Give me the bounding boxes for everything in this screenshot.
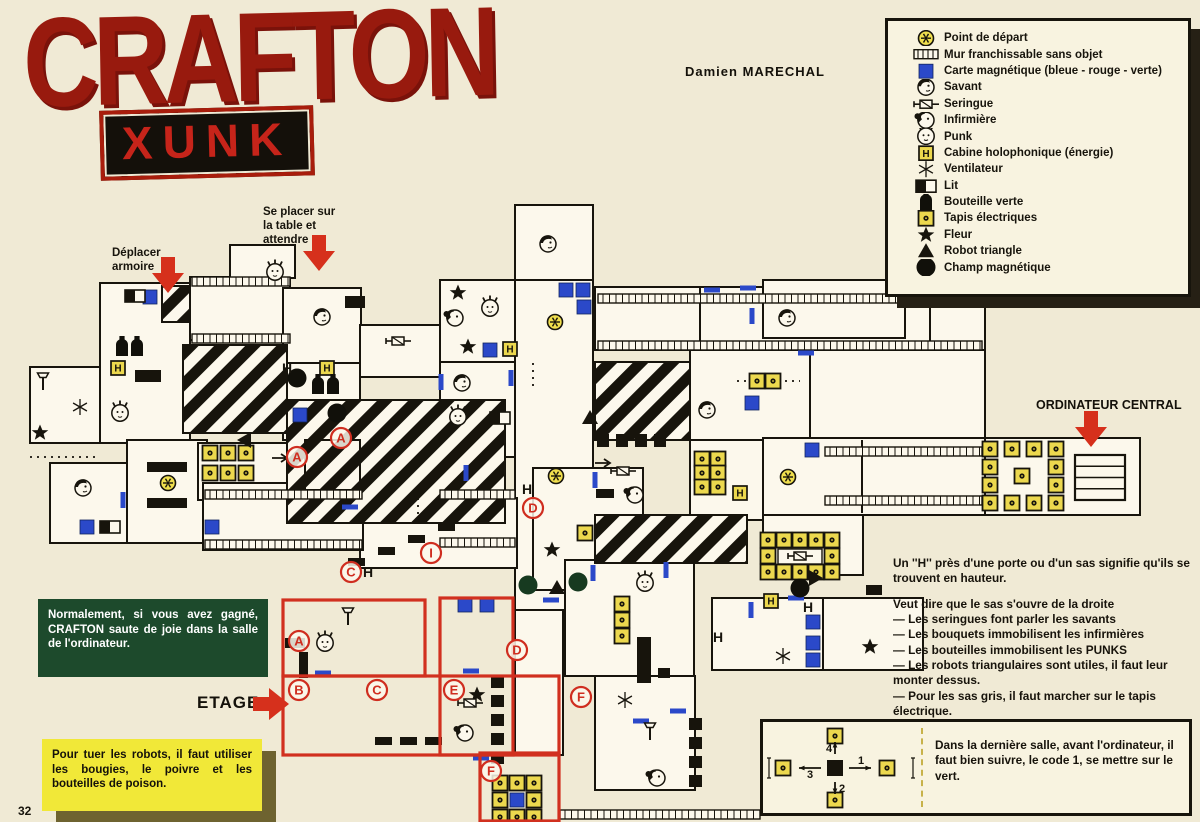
carte-icon: [806, 653, 820, 667]
table-block: [345, 296, 365, 308]
tapis-icon: [793, 533, 808, 548]
tapis-icon: [221, 466, 236, 481]
rule-line: — Pour les sas gris, il faut marcher sur…: [893, 689, 1195, 720]
lit-icon: [125, 290, 145, 302]
svg-text:F: F: [487, 764, 495, 779]
yellow-note: Pour tuer les robots, il faut utiliser l…: [42, 739, 262, 811]
red-arrow-down-icon: [303, 235, 335, 271]
rule-line: — Les seringues font parler les savants: [893, 612, 1195, 627]
tapis-icon: [983, 460, 998, 475]
sas-block: [654, 434, 666, 447]
ladder-mini-icon: [914, 50, 938, 59]
savant-icon: [918, 79, 934, 95]
legend-item-label: Fleur: [944, 229, 972, 241]
tapis-icon: [1015, 469, 1030, 484]
cabine-icon: H: [908, 145, 944, 161]
carte-icon: [293, 408, 307, 422]
rules-intro: Veut dire que le sas s'ouvre de la droit…: [893, 597, 1195, 612]
svg-text:H: H: [114, 364, 121, 375]
champ-icon: [328, 404, 347, 423]
logo-xunk-badge: XUNK: [99, 105, 315, 181]
tapis-icon: [1049, 442, 1064, 457]
legend-item-label: Point de départ: [944, 32, 1028, 44]
champ-icon: [569, 573, 588, 592]
svg-text:H: H: [922, 149, 929, 160]
point-icon: [549, 469, 564, 484]
cabine-icon: H: [919, 146, 933, 160]
infirmiere-icon: [454, 725, 474, 742]
rule-line: — Les robots triangulaires sont utiles, …: [893, 658, 1195, 689]
legend-rows: Point de départMur franchissable sans ob…: [888, 30, 1188, 276]
savant-icon: [454, 374, 470, 391]
tapis-icon: [203, 466, 218, 481]
tapis-icon: [983, 478, 998, 493]
table-block: [866, 585, 882, 595]
tapis-icon: [615, 613, 630, 628]
carte-icon: [80, 520, 94, 534]
room-letter-C: C: [367, 680, 387, 700]
tapis-icon: [983, 496, 998, 511]
legend-item-seringue: Seringue: [908, 96, 1188, 112]
carte-icon: [745, 396, 759, 410]
tapis-icon: [239, 466, 254, 481]
tapis-icon: [239, 446, 254, 461]
legend-item-champ: Champ magnétique: [908, 259, 1188, 275]
tapis-icon: [1005, 442, 1020, 457]
infirmiere-icon: [908, 112, 944, 128]
tapis-icon: [615, 629, 630, 644]
tapis-icon: [527, 776, 542, 791]
legend-item-vent: Ventilateur: [908, 161, 1188, 177]
tapis-icon: [828, 729, 843, 744]
punk-icon: [908, 128, 944, 144]
svg-text:C: C: [372, 683, 382, 698]
savant-icon: [699, 401, 715, 418]
tapis-icon: [777, 565, 792, 580]
carte-icon: [908, 63, 944, 79]
lit-icon: [100, 521, 120, 533]
tapis-icon: [809, 533, 824, 548]
code-divider: [921, 728, 923, 807]
svg-text:E: E: [450, 683, 459, 698]
tapis-icon: [493, 793, 508, 808]
table-block: [147, 498, 187, 508]
tapis-icon: [761, 565, 776, 580]
logo-xunk: XUNK: [121, 113, 293, 169]
code-note: Dans la dernière salle, avant l'ordinate…: [935, 738, 1183, 784]
tick-icon: [509, 370, 514, 386]
tapis-icon: [761, 549, 776, 564]
room-letter-F: F: [571, 687, 591, 707]
tapis-icon: [711, 466, 726, 481]
mur-franchissable-icon: [825, 447, 982, 456]
point-icon: [161, 476, 176, 491]
svg-text:H: H: [323, 364, 330, 375]
legend-item-ladder: Mur franchissable sans objet: [908, 46, 1188, 62]
robot-icon: [918, 243, 934, 257]
h-height-label: H: [363, 564, 373, 580]
tapis-icon: [695, 480, 710, 495]
h-height-label: H: [282, 360, 292, 376]
carte-icon: [483, 343, 497, 357]
point-icon: [781, 470, 796, 485]
table-block: [299, 652, 308, 678]
sas-block: [689, 775, 702, 787]
champ-icon: [519, 576, 538, 595]
punk-icon: [450, 405, 466, 426]
svg-text:D: D: [528, 501, 537, 516]
cabine-icon: H: [111, 361, 125, 375]
legend-item-savant: Savant: [908, 79, 1188, 95]
svg-text:H: H: [506, 345, 513, 356]
label-etage: ETAGE: [197, 693, 259, 713]
sas-block: [491, 676, 504, 688]
hatched-area: [595, 515, 747, 563]
legend-item-label: Infirmière: [944, 114, 996, 126]
tick-icon: [543, 598, 559, 603]
tapis-icon: [919, 211, 934, 226]
legend-item-label: Carte magnétique (bleue - rouge - verte): [944, 65, 1162, 77]
tapis-icon: [203, 446, 218, 461]
carte-icon: [919, 64, 933, 78]
tick-icon: [664, 562, 669, 578]
map-room: [360, 325, 440, 377]
bottle-icon: [908, 194, 944, 210]
sas-block: [597, 434, 609, 447]
author-credit: Damien MARECHAL: [685, 64, 825, 79]
code-number: 1: [858, 755, 864, 767]
map-room: [763, 280, 905, 338]
svg-text:F: F: [577, 690, 585, 705]
map-room: [690, 350, 810, 440]
tapis-icon: [750, 374, 765, 389]
mur-franchissable-icon: [560, 810, 760, 819]
tapis-icon: [695, 452, 710, 467]
savant-icon: [540, 235, 556, 252]
seringue-icon: [908, 96, 944, 112]
carte-icon: [577, 300, 591, 314]
h-height-label: H: [713, 629, 723, 645]
legend-item-fleur: Fleur: [908, 227, 1188, 243]
h-note: Un ''H'' près d'une porte ou d'un sas si…: [893, 556, 1195, 587]
svg-text:B: B: [294, 683, 303, 698]
svg-text:H: H: [736, 489, 743, 500]
mur-franchissable-icon: [825, 496, 982, 505]
bottle-icon: [920, 194, 932, 210]
svg-text:C: C: [346, 565, 356, 580]
tick-icon: [750, 308, 755, 324]
punk-icon: [317, 631, 333, 652]
legend-item-label: Lit: [944, 180, 958, 192]
cabine-icon: H: [733, 486, 747, 500]
room-letter-C: C: [341, 562, 361, 582]
tapis-icon: [1049, 478, 1064, 493]
hatched-area: [183, 345, 287, 433]
legend-item-carte: Carte magnétique (bleue - rouge - verte): [908, 63, 1188, 79]
lit-icon: [490, 412, 510, 424]
red-arrow-down-icon: [152, 257, 184, 293]
punk-icon: [918, 128, 934, 144]
point-icon: [548, 315, 563, 330]
legend-item-tapis: Tapis électriques: [908, 210, 1188, 226]
savant-icon: [779, 309, 795, 326]
carte-icon: [576, 283, 590, 297]
svg-text:A: A: [292, 450, 302, 465]
tapis-icon: [221, 446, 236, 461]
tapis-icon: [793, 565, 808, 580]
red-arrow-down-icon: [1074, 411, 1108, 447]
carte-icon: [480, 598, 494, 612]
sas-block: [689, 756, 702, 768]
carte-icon: [805, 443, 819, 457]
robot-icon: [908, 243, 944, 259]
tapis-icon: [1027, 442, 1042, 457]
magazine-page: HHHHHAACIDABCDEFFHHHHH CRAFTON & XUNK Da…: [0, 0, 1200, 822]
legend-item-infirmiere: Infirmière: [908, 112, 1188, 128]
legend-item-label: Bouteille verte: [944, 196, 1023, 208]
tapis-icon: [761, 533, 776, 548]
sas-block: [491, 733, 504, 745]
cabine-icon: H: [503, 342, 517, 356]
h-height-label: H: [522, 481, 532, 497]
dash-block: [438, 523, 455, 531]
legend-item-label: Robot triangle: [944, 245, 1022, 257]
tick-icon: [463, 669, 479, 674]
legend-item-label: Ventilateur: [944, 163, 1003, 175]
code-number: 2: [839, 783, 845, 795]
room-letter-A: A: [289, 631, 309, 651]
mur-franchissable-icon: [205, 490, 362, 499]
champ-icon: [917, 259, 936, 275]
cabine-icon: H: [764, 594, 778, 608]
mur-franchissable-icon: [192, 334, 290, 343]
fleur-icon: [918, 227, 935, 242]
dash-block: [375, 737, 392, 745]
tapis-icon: [777, 533, 792, 548]
carte-icon: [205, 520, 219, 534]
tapis-icon: [695, 466, 710, 481]
cabine-icon: H: [320, 361, 334, 375]
room-letter-B: B: [289, 680, 309, 700]
room-letter-F: F: [481, 761, 501, 781]
tick-icon: [670, 709, 686, 714]
tick-icon: [121, 492, 126, 508]
pin-icon: [343, 608, 354, 625]
svg-text:A: A: [294, 634, 304, 649]
tapis-icon: [510, 776, 525, 791]
tick-icon: [591, 565, 596, 581]
sas-block: [491, 695, 504, 707]
legend-item-label: Savant: [944, 81, 982, 93]
seringue-icon: [458, 699, 483, 707]
point-icon: [919, 31, 934, 46]
point-icon: [908, 30, 944, 46]
legend-item-point: Point de départ: [908, 30, 1188, 46]
seringue-icon: [914, 100, 939, 108]
svg-text:I: I: [429, 546, 433, 561]
tapis-icon: [908, 210, 944, 226]
tapis-icon: [527, 793, 542, 808]
legend-item-label: Mur franchissable sans objet: [944, 49, 1103, 61]
code-number: 3: [807, 769, 813, 781]
carte-icon: [806, 636, 820, 650]
central-computer-icon: [1075, 455, 1125, 500]
savant-icon: [314, 308, 330, 325]
table-block: [658, 668, 670, 678]
page-number: 32: [18, 804, 31, 818]
tick-icon: [704, 288, 720, 293]
champ-icon: [908, 259, 944, 275]
tapis-icon: [1049, 460, 1064, 475]
tapis-icon: [825, 549, 840, 564]
arrow-icon: [595, 459, 610, 467]
room-letter-A: A: [287, 447, 307, 467]
dash-block: [378, 547, 395, 555]
hatched-area: [305, 440, 360, 490]
legend-item-label: Seringue: [944, 98, 993, 110]
tapis-icon: [825, 565, 840, 580]
map-room: [810, 350, 985, 440]
infirmiere-icon: [915, 112, 935, 128]
tapis-icon: [1005, 496, 1020, 511]
punk-icon: [267, 260, 283, 281]
carte-icon: [458, 598, 472, 612]
carte-icon: [806, 615, 820, 629]
tapis-icon: [825, 533, 840, 548]
green-note: Normalement, si vous avez gagné, CRAFTON…: [38, 599, 268, 677]
tapis-icon: [1027, 496, 1042, 511]
hatched-area: [595, 362, 690, 440]
map-room: [515, 610, 563, 755]
svg-text:D: D: [512, 643, 521, 658]
sas-block: [689, 718, 702, 730]
svg-text:A: A: [336, 431, 346, 446]
carte-icon: [510, 793, 524, 807]
tapis-icon: [1049, 496, 1064, 511]
table-block: [596, 489, 614, 498]
table-block: [637, 637, 651, 683]
tapis-icon: [776, 761, 791, 776]
svg-text:H: H: [767, 597, 774, 608]
savant-icon: [75, 479, 91, 496]
legend-item-robot: Robot triangle: [908, 243, 1188, 259]
lit-icon: [916, 180, 936, 192]
dash-block: [400, 737, 417, 745]
legend-item-lit: Lit: [908, 178, 1188, 194]
tick-icon: [342, 505, 358, 510]
room-letter-E: E: [444, 680, 464, 700]
mur-franchissable-icon: [440, 538, 515, 547]
map-room: [595, 676, 695, 790]
vent-icon: [908, 161, 944, 177]
room-letter-D: D: [523, 498, 543, 518]
savant-icon: [908, 79, 944, 95]
map-room: [230, 245, 295, 278]
legend-box: Point de départMur franchissable sans ob…: [885, 18, 1191, 297]
tick-icon: [464, 465, 469, 481]
room-letter-I: I: [421, 543, 441, 563]
h-height-label: H: [803, 599, 813, 615]
mur-franchissable-icon: [205, 540, 362, 549]
tick-icon: [740, 286, 756, 291]
label-ordinateur-central: ORDINATEUR CENTRAL: [1036, 398, 1182, 412]
code-center-block: [827, 760, 843, 776]
code-diagram: 1234: [763, 722, 921, 813]
map-room: [127, 440, 207, 543]
legend-item-label: Punk: [944, 131, 972, 143]
legend-item-label: Champ magnétique: [944, 262, 1051, 274]
room-letter-A: A: [331, 428, 351, 448]
dash-block: [408, 535, 425, 543]
tapis-icon: [766, 374, 781, 389]
tapis-icon: [983, 442, 998, 457]
tapis-icon: [615, 597, 630, 612]
legend-item-cabine: HCabine holophonique (énergie): [908, 145, 1188, 161]
tapis-icon: [578, 526, 593, 541]
sas-block: [635, 434, 647, 447]
sas-block: [689, 737, 702, 749]
champ-icon: [791, 579, 810, 598]
tick-icon: [749, 602, 754, 618]
vent-icon: [919, 161, 933, 177]
rule-line: — Les bouteilles immobilisent les PUNKS: [893, 643, 1195, 658]
rule-line: — Les bouquets immobilisent les infirmiè…: [893, 627, 1195, 642]
mur-franchissable-icon: [598, 341, 982, 350]
table-block: [135, 370, 161, 382]
sas-block: [616, 434, 628, 447]
legend-item-punk: Punk: [908, 128, 1188, 144]
punk-icon: [637, 571, 653, 592]
table-block: [147, 462, 187, 472]
tapis-icon: [711, 452, 726, 467]
legend-item-bottle: Bouteille verte: [908, 194, 1188, 210]
punk-icon: [482, 296, 498, 317]
room-letter-D: D: [507, 640, 527, 660]
tapis-icon: [880, 761, 895, 776]
code-box: 1234 Dans la dernière salle, avant l'ord…: [760, 719, 1192, 816]
tick-icon: [798, 351, 814, 356]
legend-item-label: Cabine holophonique (énergie): [944, 147, 1113, 159]
sas-block: [491, 714, 504, 726]
ladder-icon: [908, 46, 944, 62]
tick-icon: [439, 374, 444, 390]
red-arrow-right-icon: [252, 688, 290, 720]
tick-icon: [593, 472, 598, 488]
fleur-icon: [908, 227, 944, 243]
carte-icon: [559, 283, 573, 297]
lit-icon: [908, 178, 944, 194]
code-number: 4: [826, 743, 833, 755]
tapis-icon: [711, 480, 726, 495]
punk-icon: [112, 401, 128, 422]
mur-franchissable-icon: [440, 490, 515, 499]
legend-item-label: Tapis électriques: [944, 212, 1037, 224]
